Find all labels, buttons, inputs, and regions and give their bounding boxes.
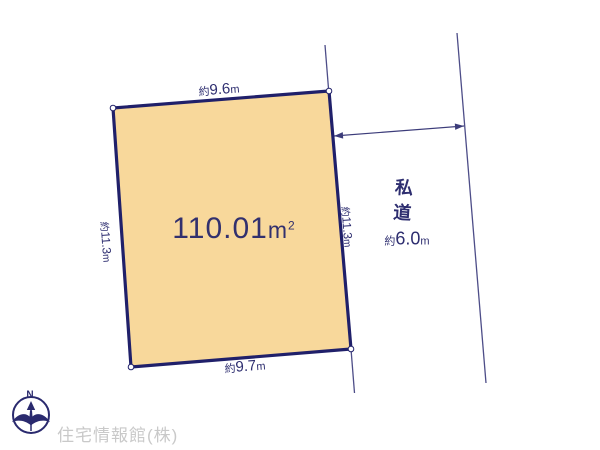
plot-corner-marker [348, 346, 354, 352]
plot-area-value: 110.01 [172, 212, 268, 245]
plot-corner-marker [326, 88, 332, 94]
plot-corner-marker [110, 105, 116, 111]
plot-area-unit: m2 [268, 217, 296, 243]
dimension-label-top: 約9.6m [198, 79, 240, 100]
road-width-label: 約6.0m [384, 229, 429, 250]
land-plot-diagram: 110.01m2 約9.6m 約9.7m 約11.3m 約11.3m 私道 約6… [0, 0, 600, 450]
road-right-boundary-line [457, 33, 486, 383]
road-name-label: 私道 [387, 177, 416, 229]
dimension-label-left: 約11.3m [96, 221, 117, 263]
road-left-boundary-upper-line [325, 45, 329, 91]
compass-north-label: N [26, 390, 33, 401]
compass-icon [12, 397, 50, 433]
dimension-label-right: 約11.3m [337, 206, 358, 248]
plot-area-label: 110.01m2 [172, 212, 295, 246]
road-left-boundary-lower-line [351, 349, 355, 393]
dimension-label-bottom: 約9.7m [224, 356, 266, 377]
diagram-canvas [0, 0, 600, 450]
road-width-arrow [334, 124, 464, 139]
north-arrow-head-icon [27, 401, 35, 410]
plot-corner-marker [128, 364, 134, 370]
bird-logo-icon [12, 411, 50, 426]
company-watermark-label: 住宅情報館(株) [57, 421, 178, 446]
road-width-arrow-line [334, 126, 464, 136]
